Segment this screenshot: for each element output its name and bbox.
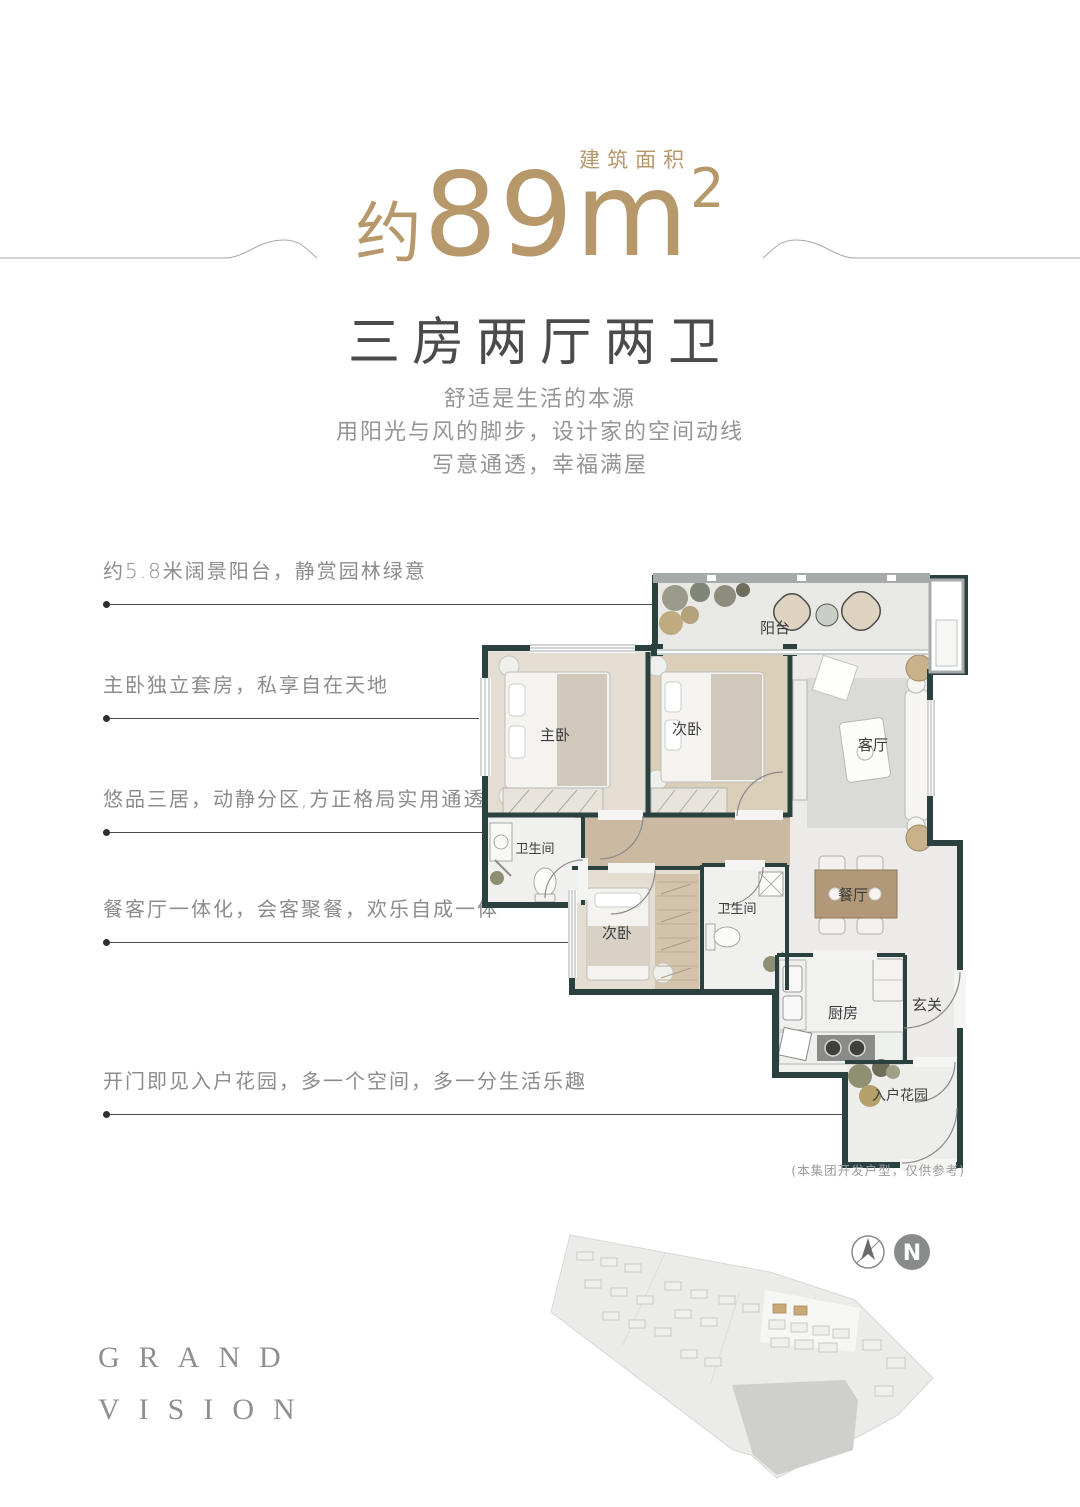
room-label-living: 客厅 <box>858 736 888 754</box>
page-title: 三房两厅两卫 <box>0 300 1080 375</box>
poster-page: 约89建筑面积m2 三房两厅两卫 舒适是生活的本源 用阳光与风的脚步，设计家的空… <box>0 0 1080 1507</box>
description: 舒适是生活的本源 用阳光与风的脚步，设计家的空间动线 写意通透，幸福满屋 <box>0 383 1080 482</box>
area-sup: 2 <box>690 162 724 216</box>
bedroom2-bed <box>647 656 764 790</box>
bedroom2-wardrobe <box>651 788 727 815</box>
room-label-kitchen: 厨房 <box>828 1004 858 1022</box>
brand-line-grand: GRAND <box>98 1332 314 1384</box>
disclaimer-note: (本集团开发户型，仅供参考) <box>735 1160 965 1179</box>
callout-leader-line <box>103 718 500 719</box>
master-wardrobe <box>503 788 603 815</box>
description-line: 舒适是生活的本源 <box>0 383 1080 416</box>
callout-text: 主卧独立套房，私享自在天地 <box>103 672 500 698</box>
area-approx: 约 <box>356 201 424 274</box>
description-line: 写意通透，幸福满屋 <box>0 449 1080 482</box>
compass: N <box>852 1234 930 1270</box>
room-label-garden: 入户花园 <box>872 1087 928 1104</box>
callout-master-suite: 主卧独立套房，私享自在天地 <box>103 672 500 719</box>
brand-line-vision: VISION <box>98 1384 314 1436</box>
description-line: 用阳光与风的脚步，设计家的空间动线 <box>0 416 1080 449</box>
area-label: 建筑面积 <box>579 144 691 174</box>
room-label-bedroom2: 次卧 <box>672 720 702 738</box>
room-label-bedroom3: 次卧 <box>602 924 632 942</box>
room-label-bath2: 卫生间 <box>717 902 756 917</box>
room-label-foyer: 玄关 <box>912 996 942 1014</box>
room-label-bath1: 卫生间 <box>515 842 554 857</box>
compass-north-label: N <box>903 1241 921 1266</box>
room-label-dining: 餐厅 <box>838 886 868 904</box>
room-label-balcony: 阳台 <box>760 619 790 637</box>
area-value: 89 <box>424 158 576 274</box>
site-plan-shape <box>551 1235 933 1478</box>
room-label-master: 主卧 <box>540 726 570 744</box>
floorplan-svg: 阳台 主卧 次卧 客厅 卫生间 次卧 卫生间 餐厅 厨房 玄关 入户花园 <box>475 560 975 1175</box>
area-unit-wrap: 建筑面积m <box>575 158 688 274</box>
site-plan-map: N <box>515 1200 985 1500</box>
area-headline: 约89建筑面积m2 <box>0 158 1080 274</box>
brand-logo: GRAND VISION <box>98 1332 314 1436</box>
